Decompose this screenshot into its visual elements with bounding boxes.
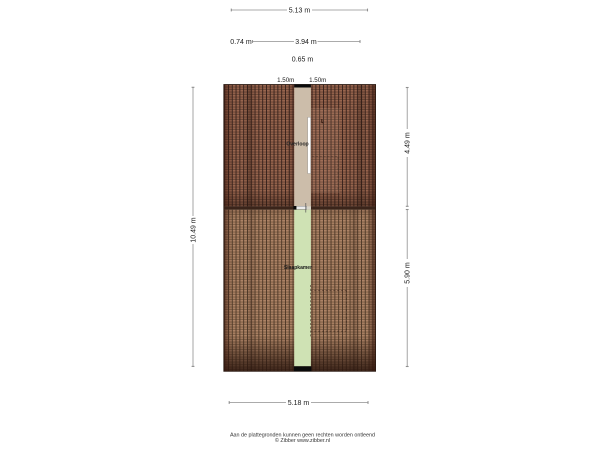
svg-text:1.50m: 1.50m [277,77,294,84]
svg-text:© Zibber www.zibber.nl: © Zibber www.zibber.nl [275,437,330,444]
svg-text:5.18 m: 5.18 m [288,400,310,407]
svg-text:Slaapkamer: Slaapkamer [284,265,312,271]
svg-text:Overloop: Overloop [286,142,308,148]
svg-text:5.13 m: 5.13 m [289,8,311,15]
svg-text:4.49 m: 4.49 m [405,132,412,154]
svg-text:10.49 m: 10.49 m [191,217,198,242]
svg-text:5.90 m: 5.90 m [405,262,412,284]
svg-text:3.94 m: 3.94 m [295,39,317,46]
svg-text:0.65 m: 0.65 m [292,57,314,64]
svg-text:1.50m: 1.50m [309,77,326,84]
svg-text:0.74 m: 0.74 m [230,39,252,46]
